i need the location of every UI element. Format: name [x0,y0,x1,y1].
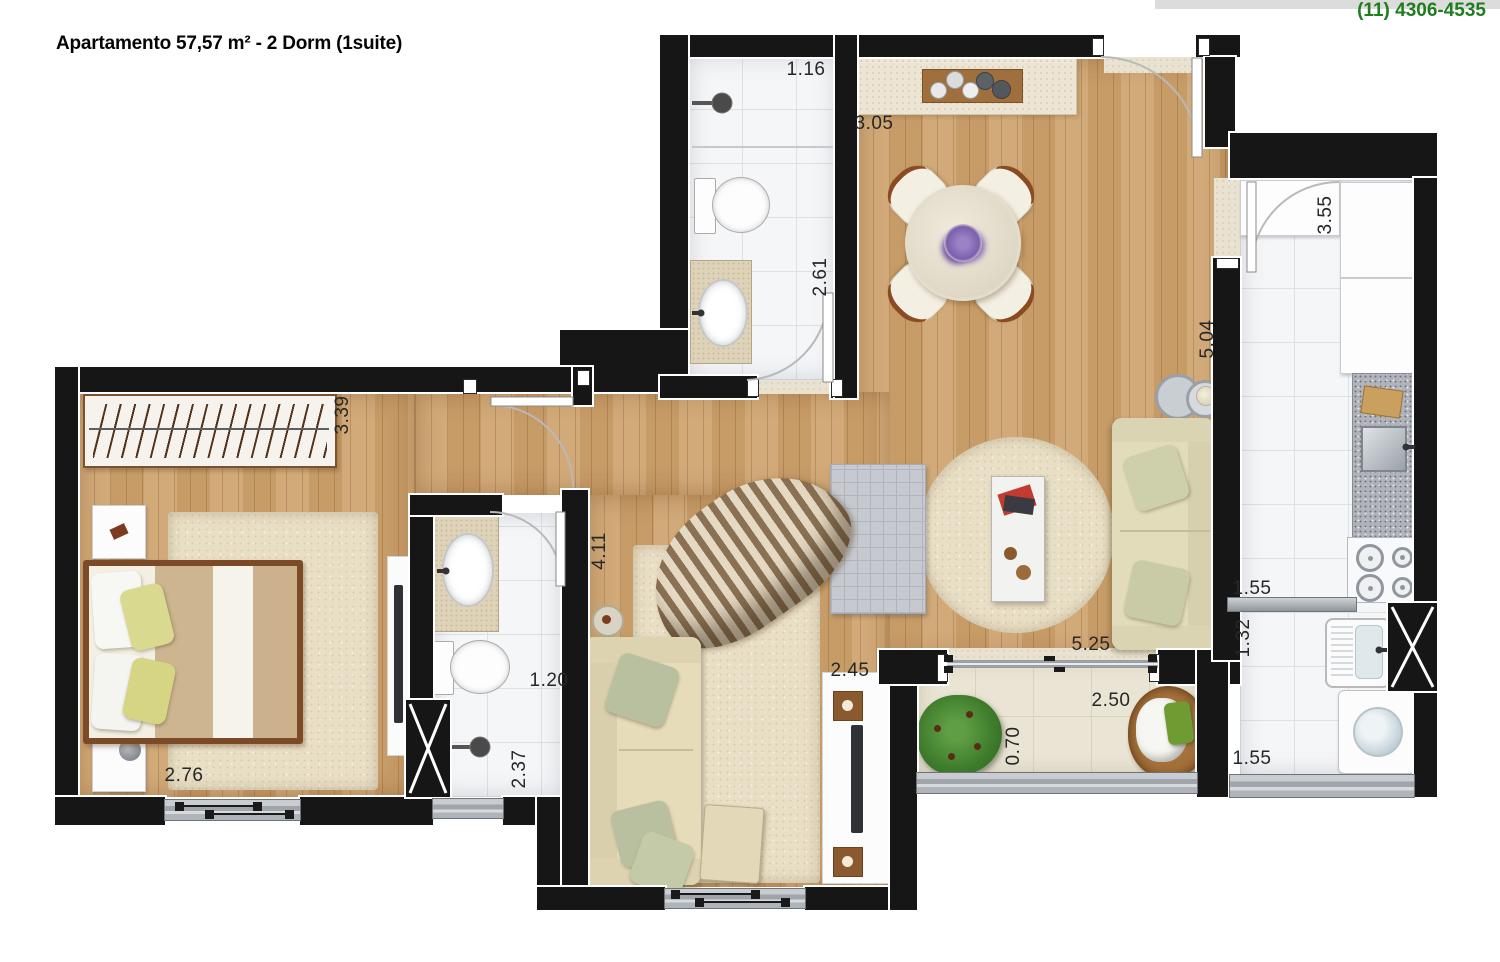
phone-number: (11) 4306-4535 [1357,0,1486,22]
dimension-label: 3.55 [1315,196,1337,235]
berry [974,743,981,750]
laundry-tank-icon [1325,618,1391,688]
flower-centerpiece-icon [944,224,982,262]
wall-segment [660,35,1104,57]
bowl-icon [930,82,947,99]
dimension-label: 5.04 [1197,320,1219,359]
gas-stove-icon [1347,537,1419,603]
duct-shaft [1388,603,1437,691]
entry-threshold [1104,57,1196,73]
shower-glass-line [692,146,836,148]
ottoman [699,804,764,884]
wall-segment [1230,133,1437,178]
wardrobe-rod [89,428,329,430]
sideboard [857,57,1077,115]
rack-foot [833,691,863,721]
toilet-bowl [712,177,770,233]
dimension-label: 1.16 [787,59,826,81]
round-dining-table [905,185,1021,301]
sofa-pillow [1123,559,1192,628]
dimension-label: 3.05 [855,113,894,135]
kitchen-sink-icon [1361,426,1407,472]
dimension-label: 3.39 [332,396,354,435]
dimension-label: 1.55 [1233,578,1272,600]
washbasin-icon [698,279,748,347]
sofa-seam [619,749,693,751]
wall-segment [1414,178,1437,797]
washer-lid [1353,707,1403,757]
washbasin-icon [442,533,494,607]
wall-segment [537,887,665,910]
washing-machine-icon [1338,690,1416,774]
berry [966,711,973,718]
wall-segment [562,490,588,910]
berry [948,753,955,760]
door-jamb [1216,258,1239,269]
tv-icon [394,585,403,723]
sofa-back [1188,418,1214,650]
tank-drainboard [1331,626,1353,676]
sofa-back [583,637,617,885]
dimension-label: 1.20 [530,670,569,692]
bath-doorway-threshold [757,380,831,394]
bowl-icon [992,80,1011,99]
suite-window [165,800,300,820]
suite-bath-window [433,799,503,818]
door-jamb [1198,38,1210,56]
service-window [1230,775,1414,797]
nightstand [92,742,146,792]
duct-shaft [406,700,450,797]
wall-segment [1197,650,1228,797]
toilet-bowl [450,640,510,694]
double-bed [83,560,303,744]
floor-hall [415,392,890,495]
dimension-label: 0.70 [1003,727,1025,766]
wardrobe [83,394,337,468]
dimension-label: 2.76 [165,765,204,787]
rack-foot [833,847,863,877]
wall-segment [890,650,917,910]
dimension-label: 5.25 [1072,634,1111,656]
table-bowl-icon [1016,565,1031,580]
bedroom2-tv-rack [822,672,890,884]
wall-segment [55,797,165,825]
wall-segment [55,367,78,825]
bedroom2-window [665,889,805,908]
wicker-patio-chair [1128,686,1208,778]
wardrobe-hangers-icon [93,404,327,458]
door-jamb [937,654,948,682]
dimension-label: 1.55 [1233,748,1272,770]
wall-segment [835,35,857,398]
nightstand [92,505,146,559]
dimension-label: 2.37 [509,750,531,789]
cutting-board-icon [1360,385,1404,418]
bed-sheet-band [213,566,253,738]
table-bowl-icon [1004,547,1017,560]
side-stool [592,605,624,637]
dimension-label: 2.50 [1092,690,1131,712]
wall-segment [410,495,502,515]
granite-counter [1352,373,1416,539]
balcony-railing [917,773,1197,793]
page-title: Apartamento 57,57 m² - 2 Dorm (1suite) [56,33,402,55]
sofa-armrest [1112,418,1214,442]
floor-plan-page: Apartamento 57,57 m² - 2 Dorm (1suite) (… [0,0,1500,962]
wall-segment [55,367,590,392]
dimension-label: 2.61 [810,258,832,297]
bowl-icon [946,71,964,89]
door-jamb [577,370,590,386]
berry [934,725,941,732]
vanity-counter [433,512,499,632]
chair-pillow [1163,700,1195,745]
door-jamb [1092,38,1104,56]
door-jamb [1149,654,1160,682]
door-jamb [747,379,759,397]
dimension-label: 2.45 [831,660,870,682]
nightstand-deco [109,523,128,540]
wall-segment [300,797,433,825]
coffee-table [991,476,1045,602]
sofa-seam [1120,530,1210,532]
door-jamb [463,379,477,394]
tank-basin [1355,625,1383,679]
vanity-counter [690,260,752,364]
sofa-bed [583,637,701,885]
door-jamb [831,379,843,397]
sofa-pillow [1121,443,1192,514]
living-sofa [1112,418,1214,650]
wall-segment [660,376,757,398]
bed-runner [253,566,297,738]
dimension-label: 4.11 [589,532,611,570]
tv-icon [851,725,863,833]
stool-deco [602,615,611,624]
dimension-label: 1.32 [1233,619,1255,658]
kitchen-doorway-threshold [1214,178,1240,264]
sofa-armrest [1112,626,1214,650]
